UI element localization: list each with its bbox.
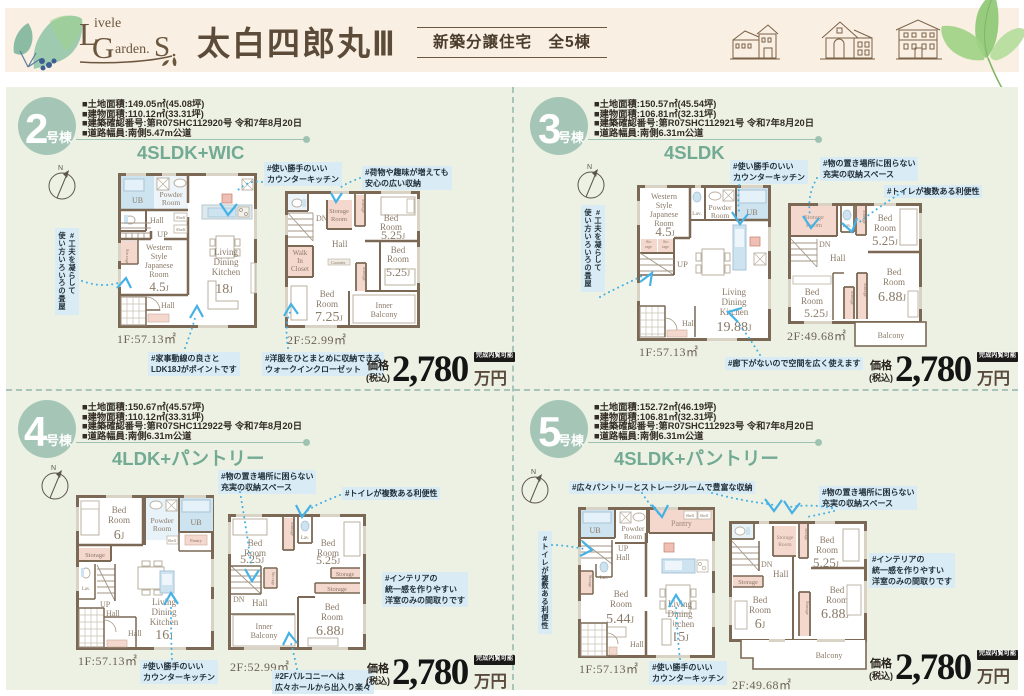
svg-text:ivele: ivele (94, 16, 121, 31)
svg-text:arden.: arden. (115, 42, 150, 57)
svg-text:G: G (92, 30, 114, 65)
